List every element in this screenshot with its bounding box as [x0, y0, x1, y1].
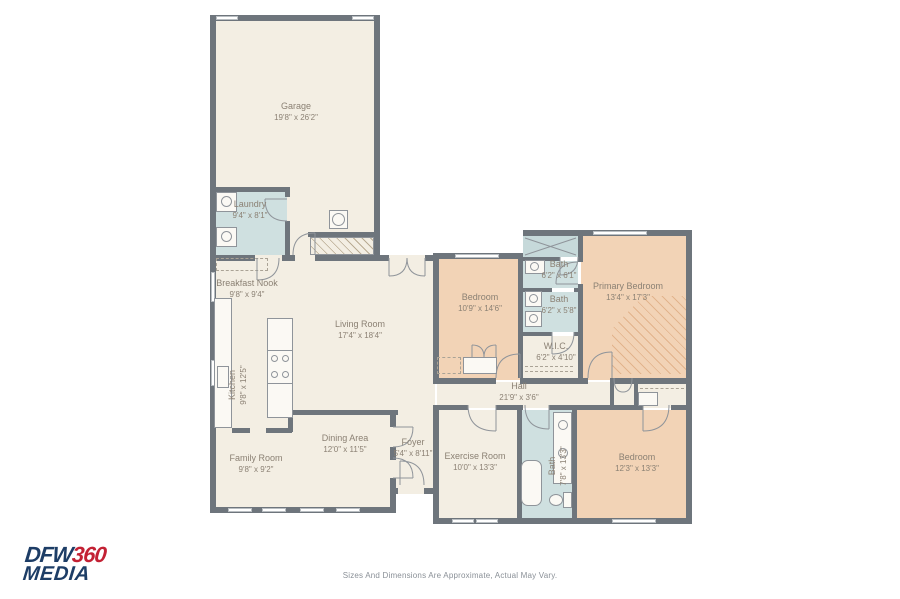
door-arcs-layer	[0, 0, 900, 599]
room-label-dining-area: Dining Area12'0" x 11'5"	[322, 433, 369, 455]
room-label-laundry: Laundry9'4" x 8'1"	[233, 199, 268, 221]
room-label-bedroom-3: Bedroom12'3" x 13'3"	[615, 452, 659, 474]
room-label-family-room: Family Room9'8" x 9'2"	[229, 453, 282, 475]
room-label-exercise-room: Exercise Room10'0" x 13'3"	[444, 451, 505, 473]
floor-plan: Garage19'8" x 26'2" Laundry9'4" x 8'1" B…	[0, 0, 900, 599]
room-label-bath-3: Bath7'8" x 13'3"	[547, 446, 569, 485]
room-label-wic: W.I.C.6'2" x 4'10"	[536, 341, 575, 363]
room-label-bedroom-2: Bedroom10'9" x 14'6"	[458, 292, 502, 314]
room-label-bath-1: Bath6'2" x 6'1"	[542, 259, 577, 281]
room-label-hall: Hall21'9" x 3'6"	[499, 381, 538, 403]
disclaimer-text: Sizes And Dimensions Are Approximate, Ac…	[0, 571, 900, 580]
room-label-foyer: Foyer5'4" x 8'11"	[394, 437, 433, 459]
room-label-breakfast-nook: Breakfast Nook9'8" x 9'4"	[216, 278, 278, 300]
room-label-garage: Garage19'8" x 26'2"	[274, 101, 318, 123]
room-label-primary-bedroom: Primary Bedroom13'4" x 17'3"	[593, 281, 663, 303]
room-label-bath-2: Bath6'2" x 5'8"	[542, 294, 577, 316]
room-label-living-room: Living Room17'4" x 18'4"	[335, 319, 385, 341]
room-label-kitchen: Kitchen9'8" x 12'5"	[227, 365, 249, 404]
